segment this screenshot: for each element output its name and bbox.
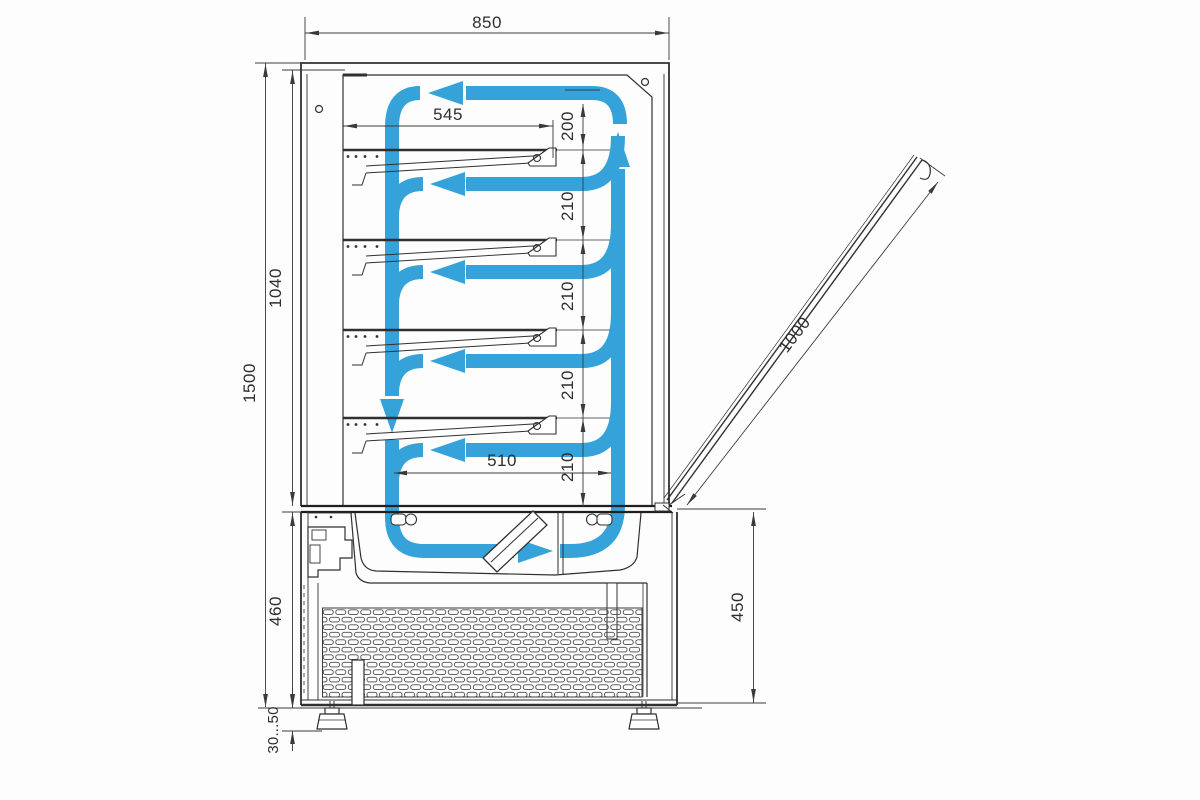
control-box (308, 513, 352, 577)
dim-label-1040: 1040 (266, 268, 285, 308)
flow-branch-3-arc (392, 361, 423, 391)
dim-label-1500: 1500 (240, 363, 259, 403)
flow-arrowhead-down-icon (380, 399, 404, 433)
dim-label-200: 200 (558, 111, 577, 141)
dim-label-545: 545 (433, 105, 463, 124)
dim-label-460: 460 (266, 596, 285, 626)
flow-arrowhead-top-left-icon (428, 81, 463, 105)
technical-drawing-page: 850 545 200 210 210 210 210 1040 1500 51… (0, 0, 1200, 800)
dim-label-1000: 1000 (775, 313, 814, 356)
flow-arrowhead-branch1-icon (430, 172, 465, 196)
corner-screw-icon (642, 79, 649, 86)
dim-450 (677, 509, 766, 703)
airflow-arrows (392, 93, 620, 551)
flow-branch-2-arc (392, 272, 423, 302)
dim-label-210-2: 210 (558, 281, 577, 311)
flow-top-run (466, 93, 620, 124)
dim-label-210-1: 210 (558, 191, 577, 221)
flow-arrowhead-up-icon (606, 132, 630, 167)
lid-hinge (655, 503, 669, 511)
dim-1000 (687, 158, 945, 505)
dim-label-210-4: 210 (558, 452, 577, 482)
dim-label-210-3: 210 (558, 370, 577, 400)
lid-handle-icon (920, 160, 930, 179)
dim-1040 (282, 70, 345, 506)
dim-545 (343, 120, 553, 158)
airflow-arrowheads (380, 81, 630, 563)
left-wall-screw-icon (316, 106, 323, 113)
display-case-section-drawing: 850 545 200 210 210 210 210 1040 1500 51… (0, 0, 1200, 800)
dim-label-510: 510 (487, 451, 517, 470)
flow-arrowhead-branch3-icon (430, 349, 465, 373)
flow-branch-4-arc (392, 450, 423, 480)
grille-bracket (352, 660, 364, 705)
base-unit (301, 494, 685, 705)
flow-branch-1-arc (392, 184, 423, 214)
flow-arrowhead-branch4-icon (430, 438, 465, 462)
dim-label-450: 450 (728, 592, 747, 622)
floor-rollers (391, 514, 612, 525)
flow-arrowhead-branch2-icon (430, 260, 465, 284)
dim-510 (394, 471, 611, 476)
fan-unit (483, 511, 547, 572)
dim-label-30-50: 30...50 (265, 706, 282, 753)
dim-label-850: 850 (472, 13, 502, 32)
ventilation-grille (318, 583, 642, 705)
